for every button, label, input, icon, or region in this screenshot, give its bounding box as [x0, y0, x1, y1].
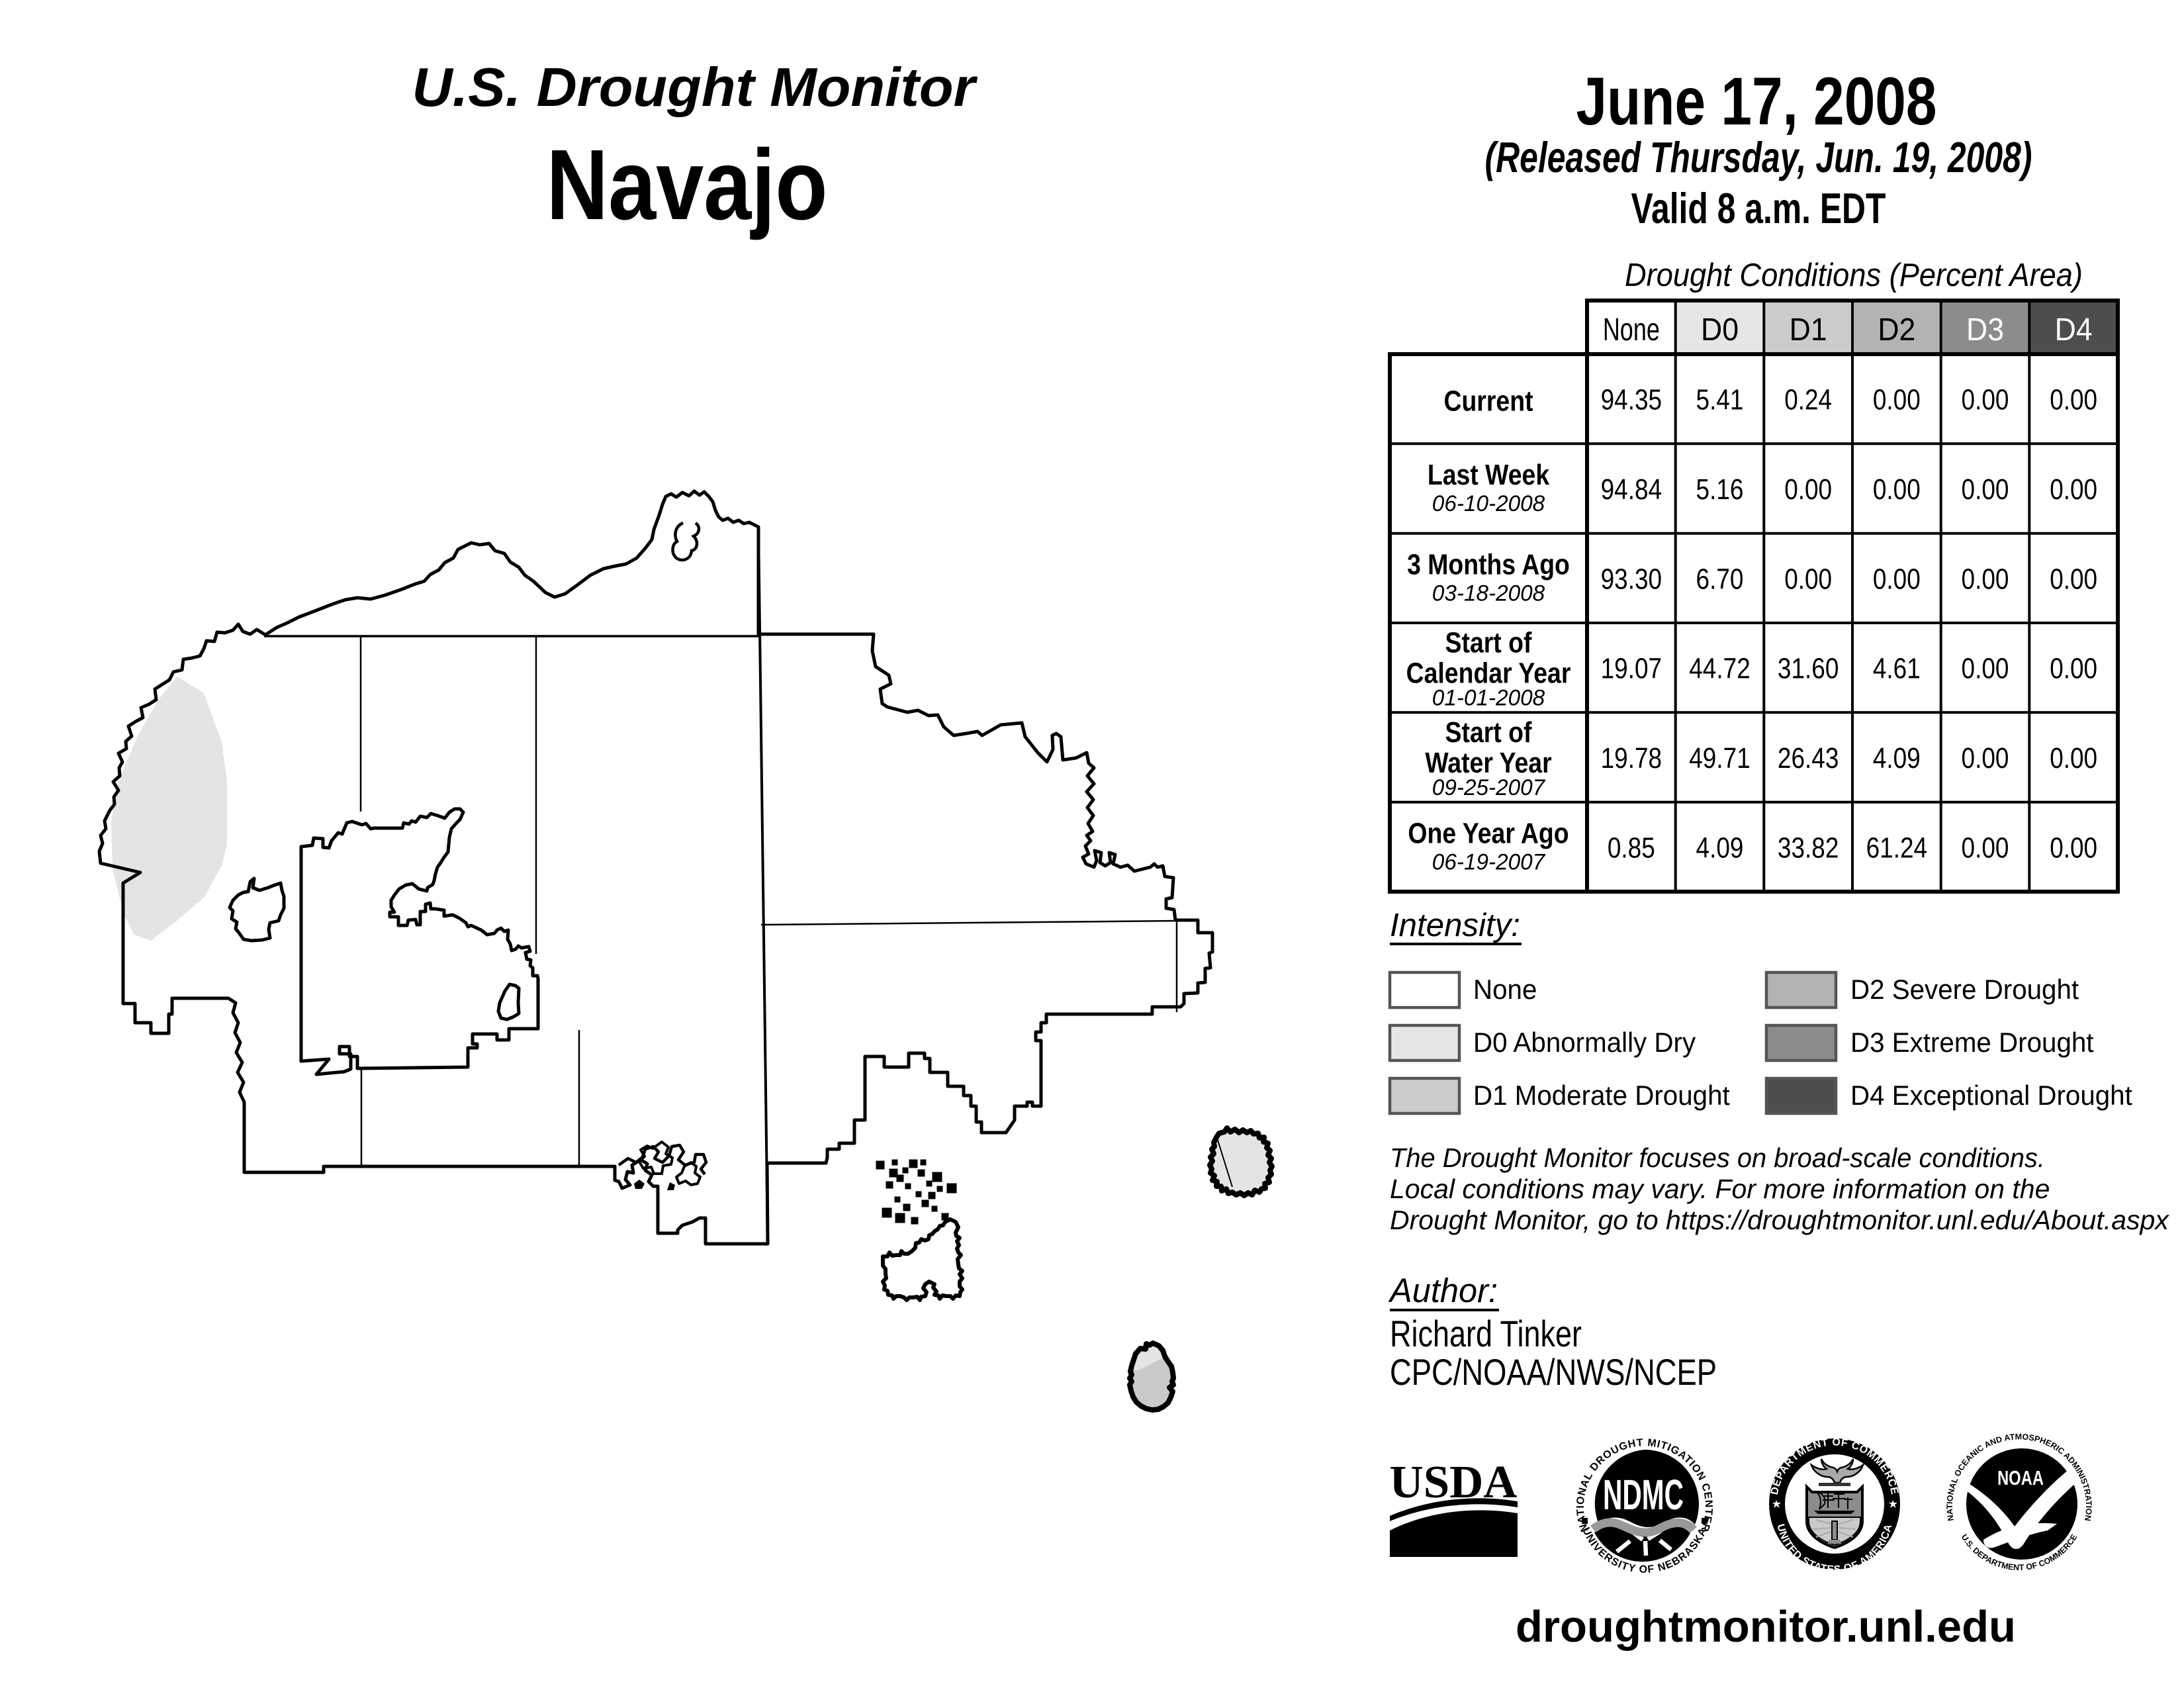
svg-text:0.00: 0.00: [1873, 563, 1921, 595]
svg-text:D1 Moderate Drought: D1 Moderate Drought: [1473, 1080, 1730, 1111]
svg-text:Local conditions may vary. For: Local conditions may vary. For more info…: [1390, 1174, 2050, 1204]
svg-text:0.00: 0.00: [1962, 742, 2009, 774]
svg-text:None: None: [1603, 312, 1660, 348]
svg-text:0.00: 0.00: [1873, 473, 1921, 506]
svg-text:0.00: 0.00: [1873, 384, 1921, 416]
svg-text:0.00: 0.00: [2050, 384, 2097, 416]
svg-text:44.72: 44.72: [1689, 653, 1751, 685]
svg-text:03-18-2008: 03-18-2008: [1432, 581, 1545, 606]
svg-text:D2 Severe Drought: D2 Severe Drought: [1850, 974, 2079, 1005]
svg-text:61.24: 61.24: [1866, 831, 1928, 864]
svg-text:0.00: 0.00: [1784, 563, 1832, 595]
svg-text:0.24: 0.24: [1784, 384, 1832, 416]
svg-text:D2: D2: [1878, 312, 1915, 348]
svg-text:June 17, 2008: June 17, 2008: [1576, 64, 1937, 139]
svg-text:49.71: 49.71: [1689, 742, 1751, 774]
svg-text:0.00: 0.00: [2050, 831, 2097, 864]
svg-text:Start of: Start of: [1445, 716, 1532, 749]
svg-text:D4 Exceptional Drought: D4 Exceptional Drought: [1850, 1080, 2132, 1111]
svg-text:0.85: 0.85: [1608, 831, 1655, 864]
svg-text:Author:: Author:: [1388, 1272, 1498, 1309]
svg-text:6.70: 6.70: [1696, 563, 1744, 595]
svg-text:D0 Abnormally Dry: D0 Abnormally Dry: [1473, 1027, 1696, 1058]
svg-text:D1: D1: [1790, 312, 1827, 348]
svg-text:D4: D4: [2055, 312, 2093, 348]
svg-text:0.00: 0.00: [1962, 384, 2009, 416]
svg-text:19.07: 19.07: [1601, 653, 1662, 685]
svg-text:4.09: 4.09: [1696, 831, 1744, 864]
svg-text:The Drought Monitor focuses on: The Drought Monitor focuses on broad-sca…: [1390, 1143, 2045, 1173]
svg-text:Intensity:: Intensity:: [1390, 908, 1520, 943]
svg-text:26.43: 26.43: [1778, 742, 1839, 774]
svg-text:droughtmonitor.unl.edu: droughtmonitor.unl.edu: [1516, 1602, 2016, 1652]
svg-text:Drought Conditions (Percent Ar: Drought Conditions (Percent Area): [1625, 258, 2083, 293]
svg-text:CPC/NOAA/NWS/NCEP: CPC/NOAA/NWS/NCEP: [1390, 1351, 1717, 1393]
svg-text:0.00: 0.00: [1962, 653, 2009, 685]
svg-text:94.35: 94.35: [1601, 384, 1662, 416]
svg-text:4.09: 4.09: [1873, 742, 1921, 774]
svg-text:33.82: 33.82: [1778, 831, 1839, 864]
svg-text:Last Week: Last Week: [1428, 459, 1550, 491]
svg-text:0.00: 0.00: [1962, 831, 2009, 864]
svg-text:Calendar Year: Calendar Year: [1406, 657, 1571, 690]
svg-text:U.S. Drought Monitor: U.S. Drought Monitor: [412, 56, 979, 118]
svg-text:93.30: 93.30: [1601, 563, 1662, 595]
svg-text:3 Months Ago: 3 Months Ago: [1407, 548, 1570, 581]
svg-text:0.00: 0.00: [2050, 742, 2097, 774]
svg-text:Start of: Start of: [1445, 627, 1532, 659]
svg-text:5.16: 5.16: [1696, 473, 1744, 506]
svg-text:One Year Ago: One Year Ago: [1408, 817, 1569, 849]
svg-text:Richard Tinker: Richard Tinker: [1390, 1313, 1582, 1354]
svg-text:0.00: 0.00: [1962, 563, 2009, 595]
svg-text:Current: Current: [1443, 385, 1533, 418]
svg-text:Navajo: Navajo: [547, 128, 828, 240]
svg-text:0.00: 0.00: [1962, 473, 2009, 506]
svg-text:01-01-2008: 01-01-2008: [1432, 686, 1545, 711]
svg-text:Valid 8 a.m. EDT: Valid 8 a.m. EDT: [1631, 184, 1886, 232]
svg-text:06-19-2007: 06-19-2007: [1432, 849, 1545, 874]
svg-text:D0: D0: [1701, 312, 1739, 348]
svg-text:31.60: 31.60: [1778, 653, 1839, 685]
svg-text:0.00: 0.00: [1784, 473, 1832, 506]
svg-text:D3 Extreme Drought: D3 Extreme Drought: [1850, 1027, 2094, 1058]
svg-text:4.61: 4.61: [1873, 653, 1921, 685]
svg-text:NDMC: NDMC: [1603, 1471, 1684, 1519]
svg-text:Drought Monitor, go to https:/: Drought Monitor, go to https://droughtmo…: [1390, 1205, 2169, 1235]
svg-text:06-10-2008: 06-10-2008: [1432, 491, 1545, 516]
svg-text:0.00: 0.00: [2050, 563, 2097, 595]
svg-text:(Released Thursday, Jun. 19, 2: (Released Thursday, Jun. 19, 2008): [1485, 133, 2032, 181]
svg-text:None: None: [1473, 974, 1537, 1005]
svg-text:94.84: 94.84: [1601, 473, 1662, 506]
svg-text:0.00: 0.00: [2050, 473, 2097, 506]
svg-text:NOAA: NOAA: [1997, 1466, 2044, 1489]
svg-text:09-25-2007: 09-25-2007: [1432, 775, 1545, 800]
svg-text:19.78: 19.78: [1601, 742, 1662, 774]
svg-text:5.41: 5.41: [1696, 384, 1744, 416]
svg-text:0.00: 0.00: [2050, 653, 2097, 685]
svg-text:D3: D3: [1966, 312, 2004, 348]
svg-text:Water Year: Water Year: [1425, 747, 1551, 779]
